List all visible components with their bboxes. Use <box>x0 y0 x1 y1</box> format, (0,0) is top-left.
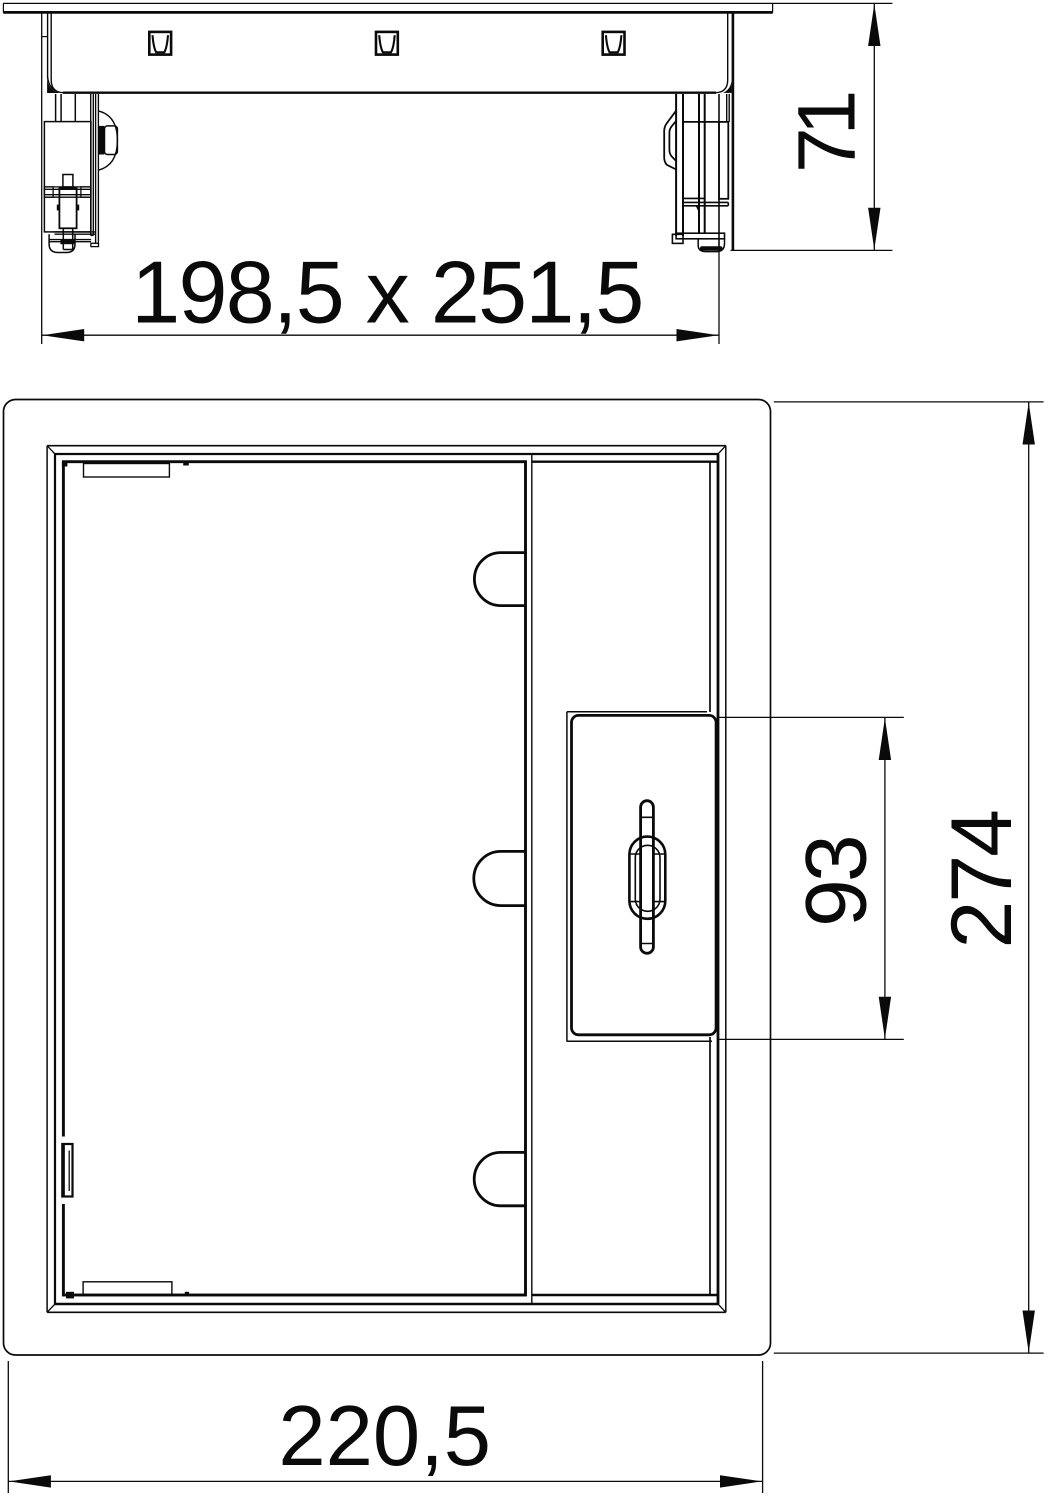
svg-text:274: 274 <box>934 811 1030 949</box>
svg-text:71: 71 <box>782 93 873 173</box>
svg-text:198,5 x 251,5: 198,5 x 251,5 <box>131 242 644 341</box>
svg-text:220,5: 220,5 <box>278 1389 491 1484</box>
svg-text:93: 93 <box>789 837 885 927</box>
